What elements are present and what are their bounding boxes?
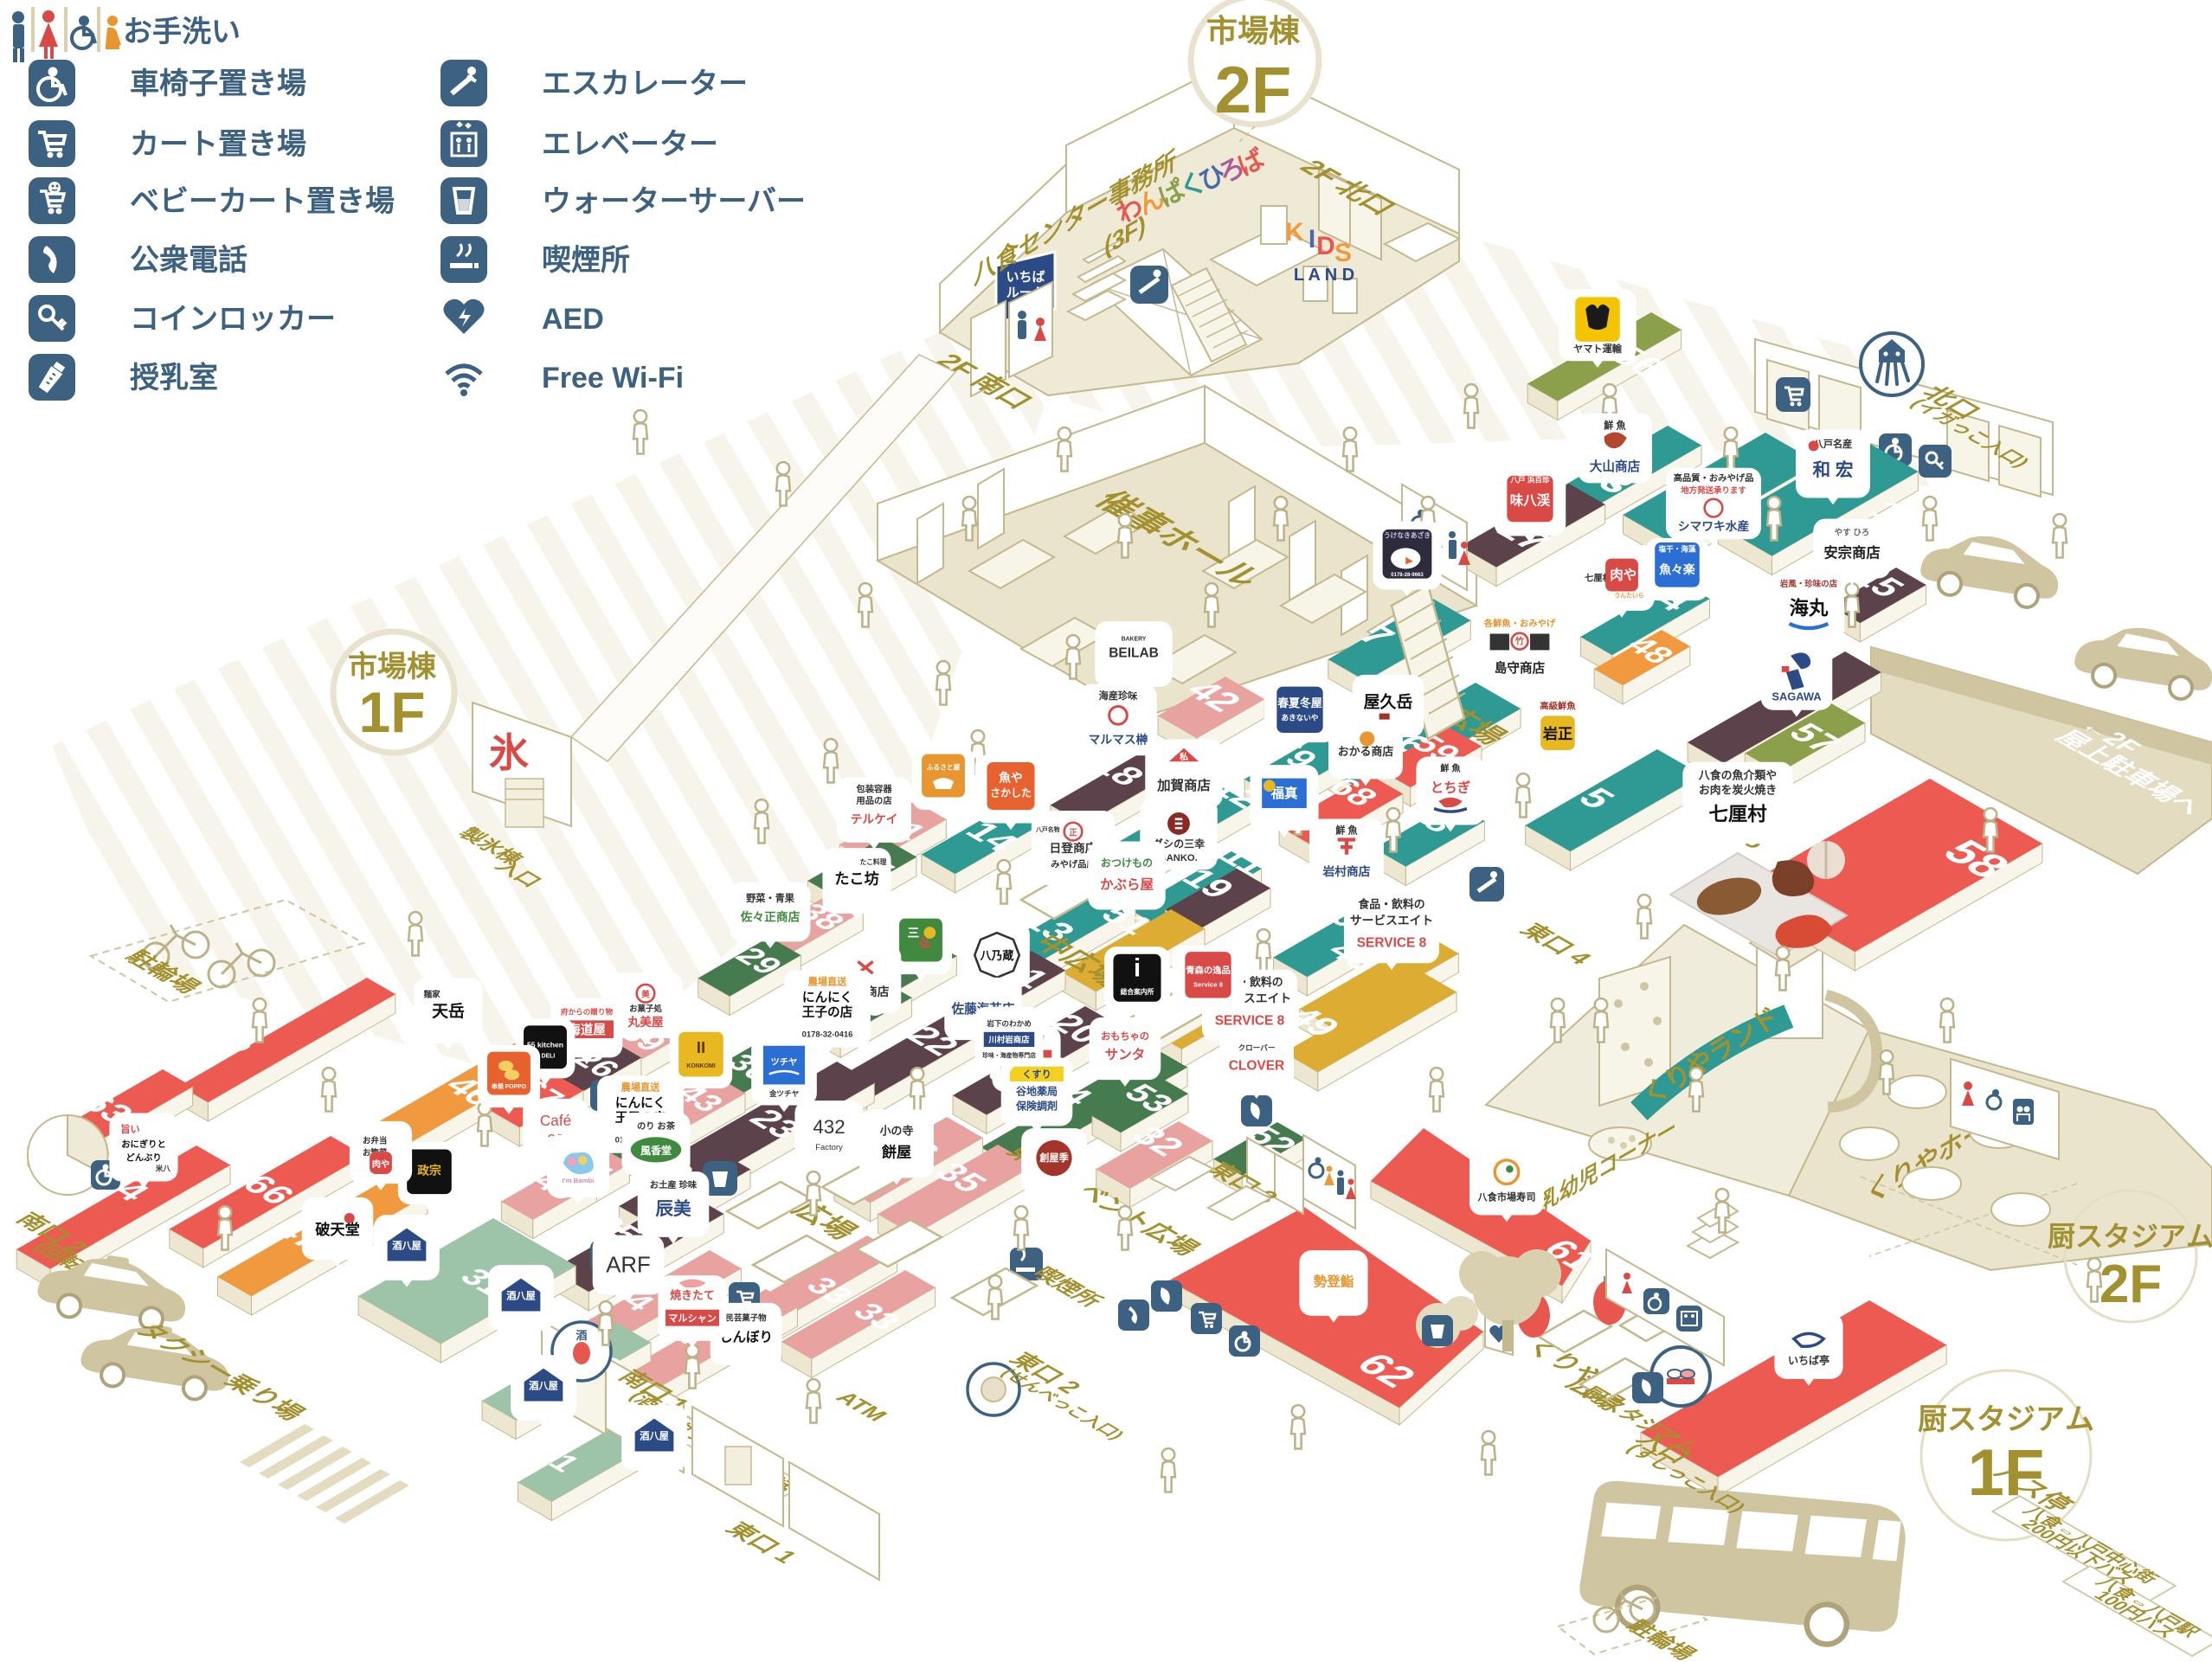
svg-text:お弁当: お弁当 (363, 1136, 387, 1146)
svg-text:弘: 弘 (919, 937, 931, 950)
svg-text:川村岩商店: 川村岩商店 (987, 1035, 1030, 1045)
svg-text:厨スタジアム: 厨スタジアム (2048, 1221, 2212, 1252)
svg-text:魚々楽: 魚々楽 (1659, 562, 1695, 576)
svg-text:I'm Bambi: I'm Bambi (563, 1177, 595, 1184)
svg-text:市場棟: 市場棟 (348, 650, 437, 683)
svg-text:焼きたて: 焼きたて (670, 1289, 715, 1302)
svg-text:にんにく: にんにく (802, 990, 852, 1004)
svg-text:ベビーカート置き場: ベビーカート置き場 (130, 185, 395, 218)
svg-text:しんぼり: しんぼり (719, 1330, 773, 1345)
svg-text:どんぶり: どんぶり (125, 1152, 161, 1163)
svg-text:青森の逸品: 青森の逸品 (1186, 965, 1231, 976)
svg-text:八戸名産: 八戸名産 (1813, 438, 1853, 450)
svg-text:Café: Café (540, 1112, 571, 1129)
svg-text:味八渓: 味八渓 (1510, 491, 1551, 508)
svg-text:SAGAWA: SAGAWA (1772, 690, 1821, 703)
svg-text:正: 正 (1069, 828, 1077, 837)
svg-text:美: 美 (640, 990, 650, 1000)
svg-text:辰美: 辰美 (655, 1198, 691, 1219)
svg-text:サンタ: サンタ (1105, 1047, 1145, 1062)
svg-text:酒八屋: 酒八屋 (640, 1431, 669, 1442)
svg-text:テルケイ: テルケイ (851, 812, 898, 825)
svg-text:お肉を炭火焼き: お肉を炭火焼き (1699, 784, 1777, 797)
svg-text:氷: 氷 (489, 730, 529, 775)
svg-text:やす ひろ: やす ひろ (1835, 529, 1869, 538)
svg-text:野菜・青果: 野菜・青果 (746, 892, 795, 904)
svg-text:安宗商店: 安宗商店 (1823, 544, 1880, 561)
svg-text:うけなきあざき: うけなきあざき (1384, 530, 1431, 539)
svg-text:餅屋: 餅屋 (881, 1143, 911, 1160)
svg-text:BEILAB: BEILAB (1109, 645, 1159, 660)
svg-text:K: K (1285, 218, 1304, 247)
svg-text:シマワキ水産: シマワキ水産 (1678, 519, 1750, 533)
svg-text:破天堂: 破天堂 (315, 1221, 360, 1238)
svg-text:丸美屋: 丸美屋 (627, 1015, 664, 1029)
svg-text:創屋季: 創屋季 (1038, 1152, 1069, 1164)
svg-text:BAKERY: BAKERY (1122, 637, 1147, 643)
svg-text:風香堂: 風香堂 (640, 1144, 672, 1157)
svg-text:包装容器: 包装容器 (856, 783, 892, 794)
svg-text:かぶら屋: かぶら屋 (1100, 876, 1154, 892)
svg-text:おにぎりと: おにぎりと (121, 1139, 166, 1150)
svg-text:2F: 2F (2099, 1255, 2162, 1314)
svg-text:カート置き場: カート置き場 (130, 128, 306, 161)
svg-text:にんにく: にんにく (615, 1095, 666, 1110)
svg-text:用品の店: 用品の店 (855, 795, 891, 806)
svg-text:サービスエイト: サービスエイト (1350, 914, 1433, 927)
svg-text:たこ料理: たこ料理 (859, 857, 886, 866)
svg-text:食品・飲料の: 食品・飲料の (1358, 898, 1424, 911)
svg-text:CLOVER: CLOVER (1229, 1058, 1284, 1073)
svg-text:ヤマト運輸: ヤマト運輸 (1573, 343, 1623, 355)
svg-text:酒八屋: 酒八屋 (506, 1291, 536, 1302)
svg-text:八戸名物: 八戸名物 (1035, 825, 1060, 833)
svg-text:おもちゃの: おもちゃの (1101, 1031, 1149, 1043)
svg-text:海丸: 海丸 (1790, 597, 1829, 619)
svg-text:谷地薬局: 谷地薬局 (1016, 1084, 1058, 1097)
svg-text:お手洗い: お手洗い (123, 16, 241, 48)
svg-text:府からの贈り物: 府からの贈り物 (561, 1007, 614, 1017)
svg-text:I: I (1309, 225, 1315, 253)
svg-text:総合案内所: 総合案内所 (1121, 987, 1154, 996)
svg-text:旨い: 旨い (120, 1123, 139, 1135)
svg-text:七厘村: 七厘村 (1708, 804, 1767, 825)
svg-text:保険調剤: 保険調剤 (1015, 1100, 1058, 1113)
svg-text:エスカレーター: エスカレーター (542, 67, 748, 100)
svg-text:鮮 魚: 鮮 魚 (1440, 763, 1461, 774)
svg-text:おつけもの: おつけもの (1101, 857, 1153, 870)
svg-text:八乃蔵: 八乃蔵 (980, 949, 1014, 962)
svg-text:竹: 竹 (1514, 636, 1525, 647)
svg-text:魚や: 魚や (999, 770, 1023, 784)
svg-text:2F: 2F (1215, 54, 1292, 127)
svg-text:マルマス榊: マルマス榊 (1089, 733, 1148, 747)
svg-text:Factory: Factory (815, 1143, 843, 1152)
svg-text:八戸 浜百珍: 八戸 浜百珍 (1509, 475, 1550, 484)
svg-text:お土産 珍味: お土産 珍味 (650, 1179, 698, 1190)
svg-text:S: S (1334, 239, 1352, 267)
svg-text:加賀商店: 加賀商店 (1156, 777, 1211, 793)
svg-text:コインロッカー: コインロッカー (130, 303, 336, 336)
svg-text:天岳: 天岳 (432, 1002, 465, 1021)
svg-text:大山商店: 大山商店 (1590, 459, 1641, 474)
svg-text:酒八屋: 酒八屋 (392, 1241, 421, 1252)
svg-text:肉や: 肉や (372, 1158, 390, 1170)
svg-text:屋久岳: 屋久岳 (1364, 692, 1413, 712)
svg-text:珍味・海産物専門店: 珍味・海産物専門店 (982, 1051, 1036, 1059)
svg-text:432: 432 (813, 1116, 845, 1138)
svg-text:佐々正商店: 佐々正商店 (740, 909, 801, 923)
svg-text:いちば: いちば (1006, 270, 1045, 285)
svg-text:厨スタジアム: 厨スタジアム (1918, 1403, 2094, 1436)
svg-text:公衆電話: 公衆電話 (130, 244, 248, 277)
svg-text:私: 私 (1180, 752, 1189, 763)
svg-text:くすり: くすり (1022, 1069, 1051, 1081)
svg-text:串焼 POPPO: 串焼 POPPO (492, 1082, 527, 1090)
svg-text:AED: AED (542, 303, 604, 336)
svg-text:II: II (697, 1039, 706, 1057)
svg-text:酒: 酒 (576, 1329, 587, 1342)
svg-text:市場棟: 市場棟 (1206, 13, 1301, 48)
svg-text:i: i (1134, 955, 1141, 983)
svg-text:八食の魚介類や: 八食の魚介類や (1698, 768, 1777, 781)
svg-text:小の寺: 小の寺 (880, 1125, 914, 1138)
svg-text:高級鮮魚: 高級鮮魚 (1540, 701, 1576, 712)
svg-text:クローバー: クローバー (1238, 1043, 1276, 1052)
svg-text:マルシャン: マルシャン (668, 1312, 717, 1324)
svg-text:SERVICE 8: SERVICE 8 (1357, 935, 1427, 950)
svg-text:三: 三 (908, 927, 920, 940)
svg-text:麺家: 麺家 (423, 990, 440, 1000)
svg-text:農場直送: 農場直送 (621, 1081, 661, 1093)
svg-text:金ツチヤ: 金ツチヤ (768, 1088, 800, 1098)
svg-text:いちば亭: いちば亭 (1788, 1354, 1829, 1367)
svg-text:さかした: さかした (990, 787, 1032, 799)
svg-text:1F: 1F (358, 680, 425, 744)
svg-text:高品質・おみやげ品: 高品質・おみやげ品 (1674, 472, 1754, 484)
svg-text:車椅子置き場: 車椅子置き場 (130, 67, 306, 100)
svg-text:地方発送承ります: 地方発送承ります (1681, 485, 1746, 496)
svg-text:岩村商店: 岩村商店 (1321, 864, 1370, 878)
svg-text:八食市場寿司: 八食市場寿司 (1476, 1190, 1535, 1203)
svg-text:SERVICE 8: SERVICE 8 (1215, 1013, 1285, 1028)
svg-text:肉や: 肉や (1610, 567, 1636, 583)
svg-text:Service 8: Service 8 (1193, 981, 1224, 989)
svg-text:鮮 魚: 鮮 魚 (1604, 420, 1626, 432)
svg-text:民芸菓子物: 民芸菓子物 (725, 1313, 767, 1324)
svg-text:KONKOMI: KONKOMI (686, 1063, 715, 1069)
svg-text:喫煙所: 喫煙所 (542, 244, 630, 277)
svg-text:授乳室: 授乳室 (130, 361, 218, 395)
svg-text:たこ坊: たこ坊 (834, 870, 879, 887)
svg-text:勢登鮨: 勢登鮨 (1314, 1273, 1354, 1289)
svg-text:ARF: ARF (606, 1254, 651, 1278)
svg-text:塩干・海藻: 塩干・海藻 (1659, 543, 1696, 553)
svg-text:0178-28-9663: 0178-28-9663 (1391, 573, 1424, 578)
svg-text:岩正: 岩正 (1542, 725, 1572, 742)
svg-text:SANKO.: SANKO. (1160, 853, 1197, 863)
svg-text:和 宏: 和 宏 (1813, 459, 1854, 480)
svg-text:島守商店: 島守商店 (1495, 660, 1546, 676)
svg-text:おかる商店: おかる商店 (1338, 745, 1394, 758)
svg-text:各鮮魚・おみやげ: 各鮮魚・おみやげ (1483, 618, 1556, 629)
svg-text:鮮 魚: 鮮 魚 (1335, 825, 1358, 837)
svg-text:酒八屋: 酒八屋 (529, 1381, 558, 1392)
svg-text:D: D (1316, 232, 1335, 260)
svg-text:岩風・珍味の店: 岩風・珍味の店 (1779, 579, 1838, 589)
svg-text:春夏冬屋: 春夏冬屋 (1276, 696, 1322, 709)
svg-text:エレベーター: エレベーター (542, 128, 718, 161)
svg-text:のり お茶: のり お茶 (637, 1120, 676, 1132)
svg-text:ウォーターサーバー: ウォーターサーバー (542, 185, 806, 218)
svg-text:王子の店: 王子の店 (802, 1004, 853, 1020)
svg-text:ツチヤ: ツチヤ (771, 1057, 798, 1068)
svg-text:Free Wi-Fi: Free Wi-Fi (542, 362, 684, 395)
svg-text:とちぎ: とちぎ (1431, 780, 1471, 796)
svg-text:農場直送: 農場直送 (808, 975, 848, 987)
svg-text:うんたいら: うんたいら (1614, 591, 1644, 599)
svg-text:L A N D: L A N D (1294, 266, 1354, 285)
svg-text:ふるさと屋: ふるさと屋 (927, 764, 961, 772)
svg-text:岩下のわかめ: 岩下のわかめ (986, 1018, 1032, 1028)
svg-text:米八: 米八 (156, 1164, 171, 1173)
svg-text:あきないや: あきないや (1282, 713, 1319, 722)
svg-text:政宗: 政宗 (417, 1164, 441, 1178)
svg-text:お菓子処: お菓子処 (629, 1004, 662, 1014)
